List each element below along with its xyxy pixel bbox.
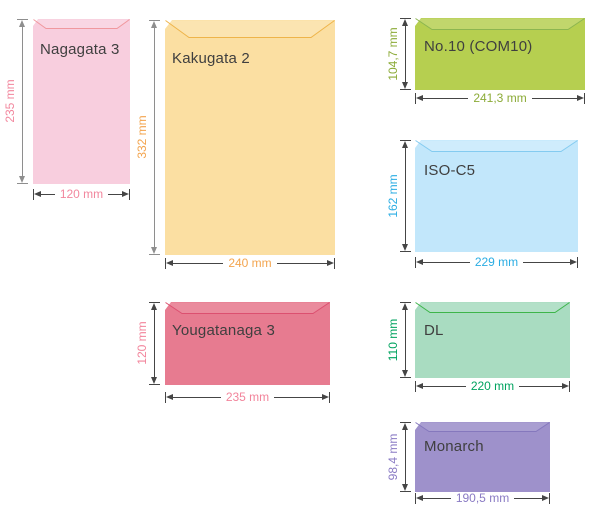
envelope-body: Kakugata 2 bbox=[165, 20, 335, 255]
height-dimension-label: 235 mm bbox=[3, 79, 17, 122]
dimension-tick bbox=[400, 251, 411, 252]
dimension-line bbox=[423, 98, 468, 99]
arrow-left-icon bbox=[416, 95, 423, 101]
arrow-left-icon bbox=[416, 495, 423, 501]
arrow-down-icon bbox=[19, 176, 25, 183]
width-dimension-label: 220 mm bbox=[466, 379, 519, 393]
dimension-tick bbox=[584, 93, 585, 104]
height-dimension-arrow bbox=[16, 19, 28, 184]
arrow-up-icon bbox=[402, 141, 408, 148]
width-dimension-arrow: 229 mm bbox=[415, 256, 578, 268]
envelope-name: DL bbox=[424, 322, 444, 339]
dimension-line bbox=[423, 498, 451, 499]
arrow-up-icon bbox=[19, 20, 25, 27]
arrow-down-icon bbox=[402, 370, 408, 377]
width-dimension-arrow: 120 mm bbox=[33, 188, 130, 200]
arrow-down-icon bbox=[151, 377, 157, 384]
envelope-flap-icon bbox=[165, 20, 335, 39]
arrow-down-icon bbox=[402, 244, 408, 251]
envelope-name: Nagagata 3 bbox=[40, 41, 120, 58]
arrow-left-icon bbox=[416, 259, 423, 265]
arrow-left-icon bbox=[416, 383, 423, 389]
height-dimension-label: 332 mm bbox=[135, 115, 149, 158]
dimension-tick bbox=[334, 258, 335, 269]
envelope-flap-icon bbox=[165, 302, 330, 315]
width-dimension-arrow: 241,3 mm bbox=[415, 92, 585, 104]
dimension-tick bbox=[400, 491, 411, 492]
height-dimension-arrow bbox=[148, 302, 160, 385]
width-dimension-label: 190,5 mm bbox=[451, 491, 514, 505]
dimension-line bbox=[523, 262, 570, 263]
width-dimension-label: 235 mm bbox=[221, 390, 274, 404]
width-dimension-label: 120 mm bbox=[55, 187, 108, 201]
arrow-right-icon bbox=[122, 191, 129, 197]
arrow-right-icon bbox=[562, 383, 569, 389]
envelope-flap-icon bbox=[33, 19, 130, 30]
dimension-line bbox=[514, 498, 542, 499]
dimension-line bbox=[173, 397, 221, 398]
envelope-size-diagram: Nagagata 3 235 mm 120 mm Kakugata 2 bbox=[0, 0, 602, 522]
dimension-tick bbox=[577, 257, 578, 268]
arrow-right-icon bbox=[542, 495, 549, 501]
arrow-left-icon bbox=[166, 260, 173, 266]
dimension-line bbox=[405, 310, 406, 370]
arrow-left-icon bbox=[166, 394, 173, 400]
dimension-tick bbox=[129, 189, 130, 200]
height-dimension-label: 98,4 mm bbox=[386, 434, 400, 481]
width-dimension-label: 241,3 mm bbox=[468, 91, 531, 105]
envelope-flap-icon bbox=[415, 18, 585, 31]
envelope-flap-icon bbox=[415, 140, 578, 153]
dimension-line bbox=[405, 148, 406, 244]
dimension-line bbox=[423, 386, 466, 387]
arrow-up-icon bbox=[402, 303, 408, 310]
width-dimension-label: 240 mm bbox=[223, 256, 276, 270]
height-dimension-arrow bbox=[399, 302, 411, 378]
envelope-body: ISO-C5 bbox=[415, 140, 578, 252]
arrow-down-icon bbox=[402, 82, 408, 89]
arrow-right-icon bbox=[322, 394, 329, 400]
dimension-tick bbox=[549, 493, 550, 504]
envelope-name: No.10 (COM10) bbox=[424, 38, 532, 55]
envelope-flap-icon bbox=[415, 422, 550, 433]
envelope-flap-icon bbox=[415, 302, 570, 314]
height-dimension-label: 120 mm bbox=[135, 321, 149, 364]
dimension-line bbox=[154, 28, 155, 247]
height-dimension-label: 104,7 mm bbox=[386, 27, 400, 80]
width-dimension-arrow: 220 mm bbox=[415, 380, 570, 392]
dimension-line bbox=[405, 430, 406, 484]
dimension-tick bbox=[17, 183, 28, 184]
dimension-line bbox=[274, 397, 322, 398]
arrow-up-icon bbox=[151, 21, 157, 28]
width-dimension-arrow: 190,5 mm bbox=[415, 492, 550, 504]
envelope-name: Monarch bbox=[424, 438, 484, 455]
dimension-line bbox=[519, 386, 562, 387]
arrow-up-icon bbox=[402, 423, 408, 430]
width-dimension-arrow: 235 mm bbox=[165, 391, 330, 403]
dimension-line bbox=[108, 194, 122, 195]
dimension-tick bbox=[329, 392, 330, 403]
arrow-right-icon bbox=[327, 260, 334, 266]
dimension-line bbox=[405, 26, 406, 82]
dimension-line bbox=[41, 194, 55, 195]
dimension-tick bbox=[400, 377, 411, 378]
dimension-tick bbox=[149, 254, 160, 255]
arrow-up-icon bbox=[402, 19, 408, 26]
width-dimension-label: 229 mm bbox=[470, 255, 523, 269]
arrow-down-icon bbox=[151, 247, 157, 254]
dimension-line bbox=[173, 263, 223, 264]
envelope-name: ISO-C5 bbox=[424, 162, 475, 179]
height-dimension-arrow bbox=[148, 20, 160, 255]
dimension-line bbox=[154, 310, 155, 377]
arrow-up-icon bbox=[151, 303, 157, 310]
dimension-tick bbox=[400, 89, 411, 90]
dimension-line bbox=[22, 27, 23, 176]
arrow-down-icon bbox=[402, 484, 408, 491]
arrow-right-icon bbox=[577, 95, 584, 101]
dimension-tick bbox=[149, 384, 160, 385]
dimension-line bbox=[532, 98, 577, 99]
envelope-name: Kakugata 2 bbox=[172, 50, 250, 67]
height-dimension-arrow bbox=[399, 140, 411, 252]
height-dimension-label: 162 mm bbox=[386, 174, 400, 217]
arrow-left-icon bbox=[34, 191, 41, 197]
dimension-line bbox=[423, 262, 470, 263]
dimension-line bbox=[277, 263, 327, 264]
height-dimension-arrow bbox=[399, 422, 411, 492]
arrow-right-icon bbox=[570, 259, 577, 265]
envelope-body: Nagagata 3 bbox=[33, 19, 130, 184]
height-dimension-arrow bbox=[399, 18, 411, 90]
height-dimension-label: 110 mm bbox=[386, 319, 400, 361]
envelope-name: Yougatanaga 3 bbox=[172, 322, 275, 339]
dimension-tick bbox=[569, 381, 570, 392]
width-dimension-arrow: 240 mm bbox=[165, 257, 335, 269]
